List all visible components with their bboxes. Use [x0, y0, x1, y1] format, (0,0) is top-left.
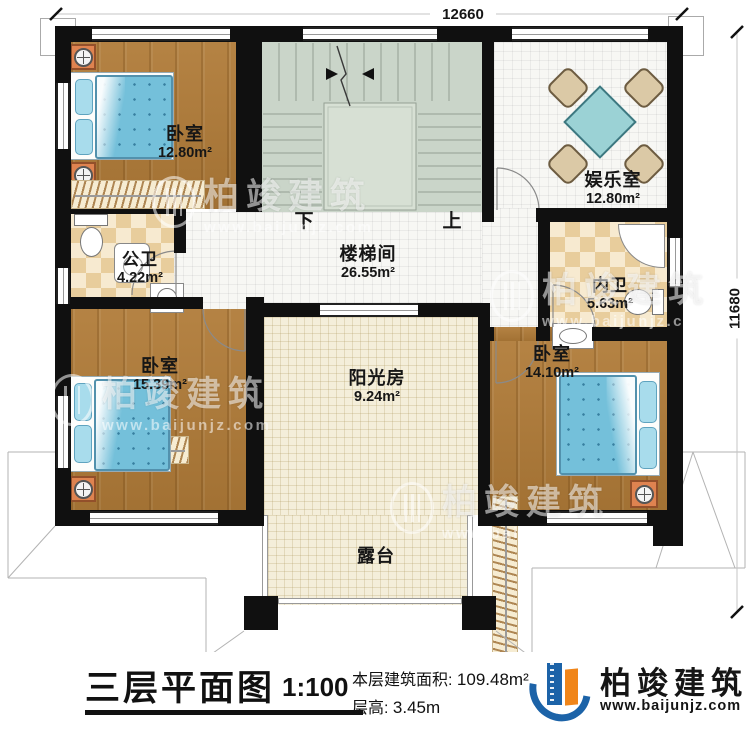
window — [547, 511, 647, 525]
floor-height-text: 层高: 3.45m — [352, 694, 440, 718]
logo-building-orange — [565, 668, 578, 705]
plan-scale: 1:100 — [282, 672, 349, 703]
room-label-private-bath: 内卫 5.63m² — [558, 276, 662, 313]
wall-bedroom1-bath — [55, 209, 186, 214]
window — [90, 511, 218, 525]
wall-bedroom1-stair — [236, 26, 262, 212]
brand-website: www.baijunjz.com — [600, 698, 741, 714]
room-label-entertainment: 娱乐室 12.80m² — [558, 170, 668, 208]
room-label-bedroom-2: 卧室 15.39m² — [105, 356, 215, 394]
window — [668, 238, 682, 286]
window — [303, 27, 437, 41]
wall-entertainment-left — [482, 26, 494, 210]
brand-logo-icon — [528, 656, 592, 724]
entertainment-door — [497, 168, 539, 210]
room-label-public-bath: 公卫 4.22m² — [90, 250, 190, 287]
window — [92, 27, 230, 41]
window — [56, 268, 70, 304]
wall-sunroom-top-a — [264, 303, 320, 317]
logo-building-blue — [547, 663, 562, 705]
wall-entertainment-bottom — [536, 208, 683, 222]
stair-direction-arrow — [326, 46, 374, 106]
wall-corner-entertainment — [482, 208, 494, 222]
terrace-post-right — [462, 596, 496, 630]
wall-corridor-bottom-left — [55, 297, 203, 309]
plan-title: 三层平面图 — [85, 660, 275, 711]
floor-plan-page: 卧室 12.80m² 娱乐室 12.80m² 公卫 4.22m² 楼梯间 26.… — [0, 0, 750, 734]
wall-bedroom3-top-b — [536, 327, 550, 341]
wall-bedroom2-right — [246, 297, 264, 515]
room-label-stairwell: 楼梯间 26.55m² — [313, 244, 423, 282]
wall-public-bath-right — [174, 213, 186, 253]
room-label-bedroom-1: 卧室 12.80m² — [130, 124, 240, 162]
brand-name: 柏竣建筑 — [600, 658, 748, 703]
dimension-top: 12660 — [430, 6, 496, 23]
wall-bedroom3-top-c — [592, 327, 683, 341]
terrace-post-left — [244, 596, 278, 630]
wall-sunroom-top-b — [418, 303, 478, 317]
bedroom-2-door — [203, 309, 245, 351]
stairs-up-label: 上 — [436, 206, 468, 233]
floor-area-text: 本层建筑面积: 109.48m² — [352, 666, 529, 690]
wall-private-bath-left — [538, 222, 550, 327]
title-block: 三层平面图 1:100 本层建筑面积: 109.48m² 层高: 3.45m 柏… — [0, 652, 750, 734]
stair-landing — [324, 103, 416, 210]
wall-corner-bottom-right — [653, 526, 683, 546]
title-underline — [85, 710, 363, 715]
window — [56, 396, 70, 468]
stairs-down-label: 下 — [288, 206, 320, 233]
window — [512, 27, 648, 41]
wall-bedroom3-top-a — [482, 327, 494, 341]
dimension-right: 11680 — [727, 279, 744, 339]
room-label-bedroom-3: 卧室 14.10m² — [497, 344, 607, 382]
window — [56, 83, 70, 149]
room-label-sunroom: 阳光房 9.24m² — [322, 368, 432, 406]
room-label-terrace: 露台 — [341, 546, 411, 567]
window — [320, 303, 418, 317]
